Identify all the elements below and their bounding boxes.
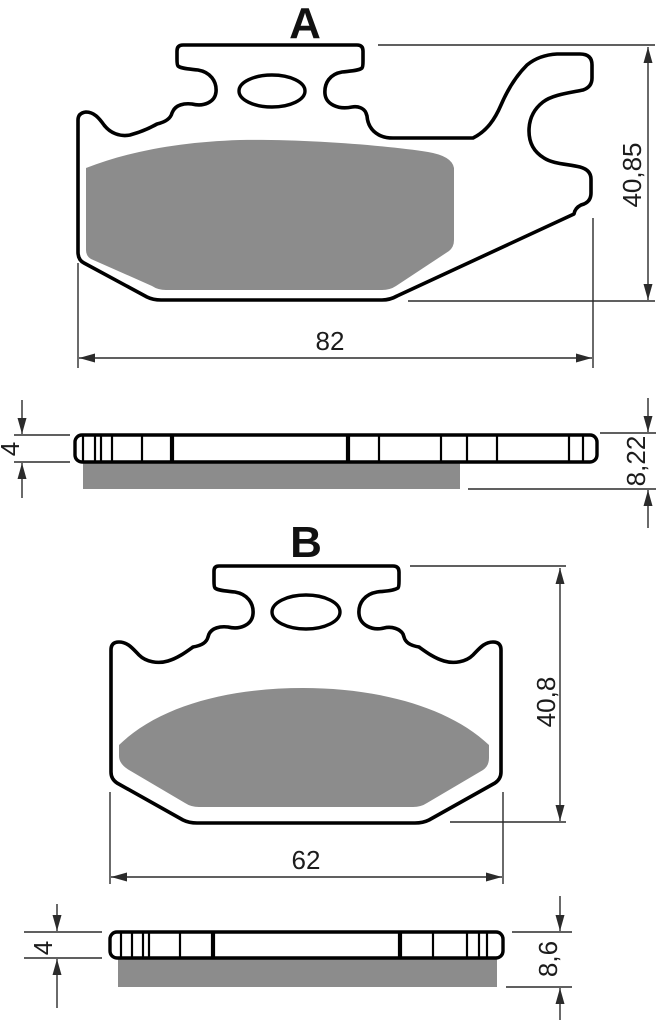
view-b-side <box>110 932 503 987</box>
arrowhead <box>576 354 592 363</box>
dim-b-height: 40,8 <box>531 677 561 728</box>
arrowhead <box>644 47 653 63</box>
arrowhead <box>111 873 127 882</box>
drawing-canvas: 40,85 82 <box>0 0 657 1024</box>
brake-pad-technical-drawing: 40,85 82 <box>0 0 657 1024</box>
pad-a-side-friction <box>83 462 460 489</box>
arrowhead <box>644 284 653 300</box>
dim-b-width: 62 <box>292 845 321 875</box>
arrowhead <box>644 490 653 506</box>
pad-a-friction-material <box>86 140 454 290</box>
view-b-label: B <box>290 518 322 567</box>
arrowhead <box>556 805 565 821</box>
dim-b-plate-thickness: 4 <box>28 941 58 955</box>
pad-a-side-plate <box>75 435 597 462</box>
arrowhead <box>53 915 62 931</box>
arrowhead <box>556 568 565 584</box>
dim-a-height: 40,85 <box>617 142 647 207</box>
view-b-plan <box>111 566 501 823</box>
dim-a-plate-thickness: 4 <box>0 442 25 456</box>
arrowhead <box>53 959 62 975</box>
pad-b-side-friction <box>118 958 497 987</box>
arrowhead <box>79 354 95 363</box>
arrowhead <box>556 988 565 1004</box>
dim-a-width: 82 <box>316 326 345 356</box>
pad-a-slot-hole <box>239 75 305 107</box>
arrowhead <box>556 915 565 931</box>
arrowhead <box>18 463 27 479</box>
arrowhead <box>18 418 27 434</box>
pad-b-side-plate <box>110 932 503 958</box>
view-a-side <box>75 435 597 489</box>
dim-a-total-thickness: 8,22 <box>621 436 651 487</box>
dim-b-total-thickness: 8,6 <box>533 941 563 977</box>
view-a-plan <box>78 45 592 300</box>
arrowhead <box>486 873 502 882</box>
pad-b-slot-hole <box>272 595 340 629</box>
arrowhead <box>644 416 653 432</box>
view-a-label: A <box>289 0 321 48</box>
